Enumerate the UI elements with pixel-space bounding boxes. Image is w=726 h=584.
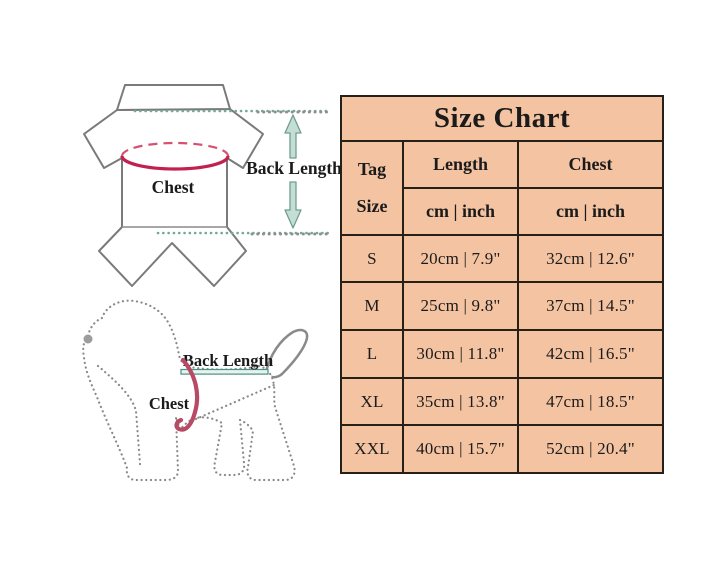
chest-value-cell: 37cm | 14.5": [518, 282, 663, 330]
chest-value-cell: 42cm | 16.5": [518, 330, 663, 378]
garment-back-length-label: Back Length: [246, 158, 342, 178]
size-chart-infographic: Chest Back Length Back Length Chest: [0, 0, 726, 584]
length-value-cell: 25cm | 9.8": [403, 282, 518, 330]
dog-diagram: Back Length Chest: [83, 301, 307, 480]
length-header-cell: Length: [403, 141, 518, 189]
size-chart-title: Size Chart: [341, 96, 663, 141]
table-row: S 20cm | 7.9" 32cm | 12.6": [341, 235, 663, 283]
length-value-cell: 30cm | 11.8": [403, 330, 518, 378]
back-length-arrow-up: [285, 115, 301, 158]
table-row: XXL 40cm | 15.7" 52cm | 20.4": [341, 425, 663, 473]
chest-value-cell: 32cm | 12.6": [518, 235, 663, 283]
table-title-row: Size Chart: [341, 96, 663, 141]
back-length-arrow-down: [285, 182, 301, 228]
length-value-cell: 35cm | 13.8": [403, 378, 518, 426]
length-value-cell: 20cm | 7.9": [403, 235, 518, 283]
table-row: XL 35cm | 13.8" 47cm | 18.5": [341, 378, 663, 426]
table-header-row: Tag Size Length Chest: [341, 141, 663, 189]
length-value-cell: 40cm | 15.7": [403, 425, 518, 473]
chest-header-cell: Chest: [518, 141, 663, 189]
size-cell: S: [341, 235, 403, 283]
tag-header-line2: Size: [357, 196, 388, 217]
chest-value-cell: 52cm | 20.4": [518, 425, 663, 473]
tag-header-line1: Tag: [358, 159, 386, 180]
dog-outline: [83, 301, 294, 480]
garment-collar: [117, 85, 230, 110]
size-cell: XXL: [341, 425, 403, 473]
tag-size-header-cell: Tag Size: [341, 141, 403, 235]
dog-back-length-label: Back Length: [183, 351, 273, 370]
table-row: M 25cm | 9.8" 37cm | 14.5": [341, 282, 663, 330]
measurement-diagrams: Chest Back Length Back Length Chest: [0, 0, 345, 584]
length-unit-cell: cm | inch: [403, 188, 518, 235]
dog-nose: [84, 335, 93, 344]
size-cell: M: [341, 282, 403, 330]
table-row: L 30cm | 11.8" 42cm | 16.5": [341, 330, 663, 378]
garment-diagram: Chest Back Length: [84, 85, 342, 286]
dog-chest-label: Chest: [149, 394, 190, 413]
chest-value-cell: 47cm | 18.5": [518, 378, 663, 426]
size-chart-table: Size Chart Tag Size Length Chest cm | in…: [340, 95, 664, 474]
garment-chest-label: Chest: [152, 177, 195, 197]
chest-unit-cell: cm | inch: [518, 188, 663, 235]
garment-outline: [84, 109, 263, 286]
size-cell: L: [341, 330, 403, 378]
size-cell: XL: [341, 378, 403, 426]
